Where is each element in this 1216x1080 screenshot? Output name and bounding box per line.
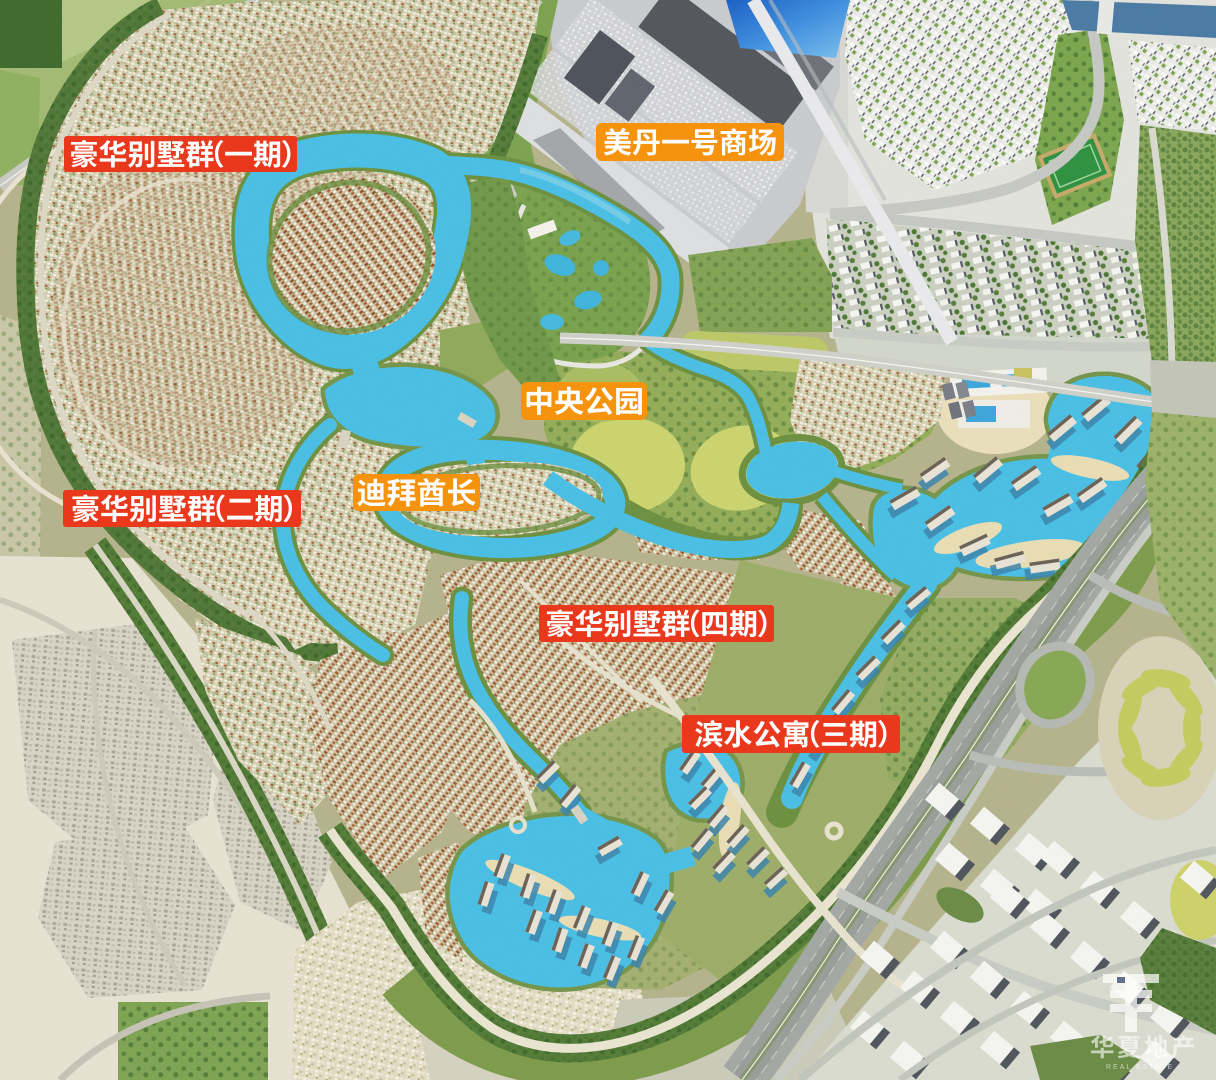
svg-text:REAL ESTATE: REAL ESTATE	[1106, 1064, 1174, 1071]
